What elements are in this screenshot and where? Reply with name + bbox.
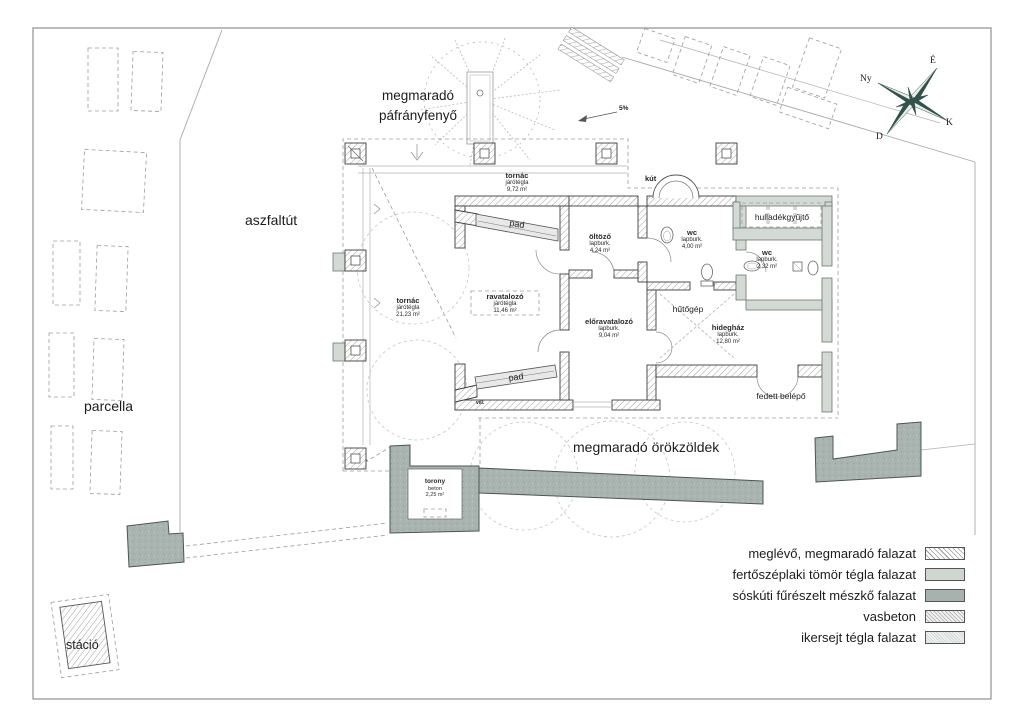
room-label-oltozo: öltöző lapburk. 4,24 m² (550, 232, 650, 255)
legend-row-limestone: sóskúti fűrészelt mészkő falazat (690, 585, 965, 606)
label-aszfaltut: aszfaltút (245, 212, 297, 228)
compass-west-label: Ny (860, 74, 872, 84)
compass-north-label: É (930, 56, 936, 66)
legend-label: sóskúti fűrészelt mészkő falazat (732, 588, 916, 603)
label-kut: kút (645, 174, 656, 183)
legend-swatch-concrete (925, 610, 965, 623)
legend-row-concrete: vasbeton (690, 606, 965, 627)
legend-swatch-solid-brick (925, 568, 965, 581)
room-label-tornac-left: tornác járótégla 21,23 m² (358, 296, 458, 319)
legend-row-cellular-brick: ikersejt tégla falazat (690, 627, 965, 648)
legend-swatch-limestone (925, 589, 965, 602)
room-label-wc2: wc lapburk. 2,32 m² (717, 248, 817, 271)
label-orokzoldek: megmaradó örökzöldek (573, 439, 719, 455)
room-label-tornac-top: tornác járótégla 9,72 m² (467, 171, 567, 194)
label-fedett-belepo: fedett belépő (731, 391, 831, 401)
legend-label: meglévő, megmaradó falazat (748, 546, 916, 561)
room-label-eloravatalozo: előravatalozó lapburk. 9,04 m² (549, 317, 669, 340)
site-plan: megmaradó páfrányfenyő aszfaltút parcell… (0, 0, 1024, 725)
legend-row-existing: meglévő, megmaradó falazat (690, 543, 965, 564)
label-pafranyfenyo-line2: páfrányfenyő (338, 108, 498, 123)
label-pafranyfenyo-line1: megmaradó (338, 88, 498, 103)
legend-label: vasbeton (863, 609, 916, 624)
label-hulladekgyujto: hulladékgyűjtő (732, 212, 832, 222)
compass-south-label: D (876, 132, 883, 142)
label-vill: vill. (476, 400, 484, 406)
legend-label: fertőszéplaki tömör tégla falazat (732, 567, 916, 582)
label-parcella: parcella (84, 398, 133, 414)
room-label-hideghaz: hidegház lapburk. 12,80 m² (678, 323, 778, 346)
room-label-ravatalozo: ravatalozó járótégla 11,46 m² (455, 292, 555, 315)
label-slope: 5% (619, 105, 628, 112)
room-label-torony: torony beton 2,25 m² (395, 478, 475, 499)
legend-swatch-existing-wall (925, 547, 965, 560)
legend-swatch-cellular-brick (925, 631, 965, 644)
legend: meglévő, megmaradó falazat fertőszéplaki… (690, 543, 965, 648)
legend-label: ikersejt tégla falazat (801, 630, 916, 645)
label-stacio: stáció (66, 638, 99, 652)
label-hutogep: hűtőgép (648, 304, 728, 314)
legend-row-brick: fertőszéplaki tömör tégla falazat (690, 564, 965, 585)
compass-east-label: K (946, 118, 953, 128)
